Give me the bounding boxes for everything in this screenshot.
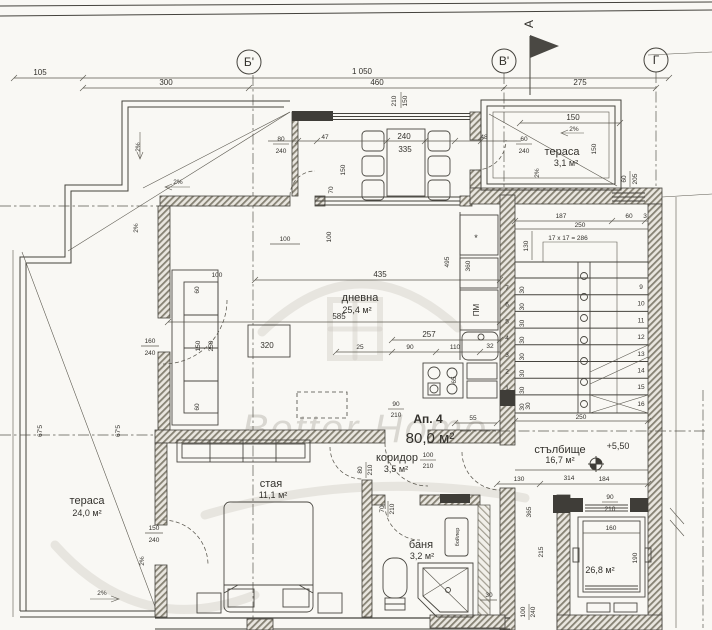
stair-riser-dim: 30: [519, 286, 526, 294]
stair-riser-dim: 30: [519, 336, 526, 344]
dim-label: 80: [357, 466, 364, 474]
stair-riser-dim: 30: [519, 370, 526, 378]
dim-label: 100: [280, 236, 291, 243]
dim-label: 130: [523, 240, 530, 251]
stair-riser-dim: 30: [519, 319, 526, 327]
boiler-label: бойлер: [454, 528, 461, 547]
floor-plan-sheet: Better Home Б' В' Г А 105 1 050 300 460 …: [0, 0, 712, 630]
apartment-area: 80,0 м²: [406, 430, 455, 447]
dim-label: 1 050: [352, 67, 373, 76]
dim-label: 495: [444, 256, 451, 267]
stair-number: 13: [637, 351, 645, 358]
dim-label: 60: [520, 136, 528, 143]
axis-label-v: В': [499, 54, 509, 68]
dim-label: 205: [632, 173, 639, 184]
room-name-bedroom: стая: [260, 478, 283, 490]
dim-label: 100: [520, 606, 527, 617]
room-name-corridor: коридор: [376, 452, 418, 464]
room-area-terrace-large: 24,0 м²: [72, 508, 101, 518]
dim-label: 60: [194, 403, 201, 411]
north-label: А: [522, 20, 536, 28]
stair-number: 2: [505, 369, 509, 376]
dim-label: 100: [326, 231, 333, 242]
dim-label: 130: [514, 476, 525, 483]
dim-label: 210: [423, 463, 434, 470]
dim-label: 240: [530, 606, 537, 617]
dim-label: 48: [480, 134, 488, 141]
dim-label: 150: [402, 95, 409, 106]
stair-riser-dim: 30: [519, 303, 526, 311]
wall-block: [440, 494, 470, 503]
dim-label: 55: [469, 415, 477, 422]
dim-label: 80: [277, 136, 285, 143]
dim-label: 435: [373, 270, 387, 279]
slope-label: 2%: [569, 126, 579, 133]
dim-label: 240: [145, 350, 156, 357]
dim-label: 210: [391, 95, 398, 106]
stair-number: 5: [505, 318, 509, 325]
dim-label: 25: [356, 344, 364, 351]
dim-label: 30: [525, 402, 532, 410]
stair-number: 4: [505, 335, 509, 342]
dim-label: 105: [33, 68, 47, 77]
dim-label: 460: [370, 78, 384, 87]
room-name-bathroom: баня: [409, 539, 433, 551]
dim-label: 67'5: [115, 425, 122, 437]
dim-label: 150: [195, 340, 202, 351]
room-name-terrace-small: тераса: [545, 146, 581, 158]
dim-label: 100: [212, 272, 223, 279]
dim-label: 240: [397, 132, 411, 141]
stair-number: 10: [637, 301, 645, 308]
dim-label: 250: [576, 414, 587, 421]
dim-label: 257: [422, 330, 436, 339]
slope-label: 2%: [534, 168, 541, 178]
dim-label: 90: [392, 401, 400, 408]
room-area-stairwell: 16,7 м²: [545, 455, 574, 465]
slope-label: 2%: [133, 223, 140, 233]
dim-label: 150: [149, 525, 160, 532]
dim-label: 240: [276, 148, 287, 155]
balcony-parapet-block: [292, 111, 333, 121]
axis-label-g: Г: [653, 53, 660, 67]
stair-formula: 17 x 17 = 286: [548, 235, 588, 242]
column: [500, 390, 515, 406]
dim-label: 335: [398, 145, 412, 154]
stair-number: 14: [637, 368, 645, 375]
stair-number: 16: [637, 401, 645, 408]
room-area-bathroom: 3,2 м²: [410, 551, 434, 561]
stair-riser-dim: 30: [519, 386, 526, 394]
stair-number: 6: [505, 302, 509, 309]
shaft-area-label: 26,8 м²: [585, 565, 614, 575]
column: [553, 495, 570, 513]
room-area-terrace-small: 3,1 м²: [554, 158, 578, 168]
stair-number: 11: [638, 317, 645, 324]
dim-label: 150: [566, 113, 580, 122]
dim-label: 210: [367, 464, 374, 475]
dim-label: 90: [406, 344, 414, 351]
dim-label: 210: [389, 503, 396, 514]
dim-label: 240: [149, 537, 160, 544]
dim-label: 150: [591, 143, 598, 154]
stair-number: 15: [637, 384, 645, 391]
apartment-number: Ап. 4: [413, 412, 443, 426]
slope-label: 2%: [135, 142, 142, 152]
dim-label: 360: [465, 260, 472, 271]
stair-number: 3: [505, 352, 509, 359]
dim-label: 300: [159, 78, 173, 87]
stair-riser-dim: 30: [519, 403, 526, 411]
dim-label: 187: [556, 213, 567, 220]
dim-label: 160: [145, 338, 156, 345]
stair-number: 12: [637, 334, 645, 341]
dim-label: 314: [564, 475, 575, 482]
stair-riser-dim: 30: [519, 353, 526, 361]
stair-number: 7: [505, 285, 509, 292]
dim-label: 275: [573, 78, 587, 87]
dim-label: 60: [625, 213, 633, 220]
dim-label: 60: [194, 286, 201, 294]
dim-label: 60: [621, 175, 628, 183]
dim-label: 215: [538, 546, 545, 557]
dim-label: 150: [340, 164, 347, 175]
stair-number: 1: [505, 385, 509, 392]
axis-label-b: Б': [244, 55, 254, 69]
dim-label: 190: [632, 552, 639, 563]
room-area-living: 25,4 м²: [342, 305, 371, 315]
dim-label: 184: [599, 476, 610, 483]
dim-label: 47: [321, 134, 329, 141]
room-name-terrace-large: тераса: [70, 495, 106, 507]
dim-label: 160: [606, 525, 617, 532]
fridge-star: *: [474, 233, 478, 243]
dim-label: 65: [451, 376, 458, 384]
dim-label: 320: [260, 341, 274, 350]
dim-label: 3: [643, 213, 647, 220]
level-label: +5,50: [607, 441, 630, 451]
dim-label: 210: [391, 412, 402, 419]
dim-label: 110: [450, 344, 461, 351]
dim-label: 250: [575, 222, 586, 229]
floor-plan-drawing: Better Home Б' В' Г А 105 1 050 300 460 …: [0, 0, 712, 630]
slope-label: 2%: [97, 590, 107, 597]
room-area-corridor: 3,5 м²: [384, 464, 408, 474]
room-area-bedroom: 11,1 м²: [259, 490, 288, 500]
room-name-living: дневна: [342, 292, 380, 304]
dim-label: 30: [485, 592, 493, 599]
dim-label: 70: [328, 186, 335, 194]
dim-label: 90: [606, 494, 614, 501]
slope-label: 2%: [173, 179, 183, 186]
dim-label: 100: [423, 452, 434, 459]
dim-label: 210: [605, 506, 616, 513]
dim-label: 32: [486, 343, 494, 350]
stair-number: 9: [639, 284, 643, 291]
dim-label: 240: [519, 148, 530, 155]
dim-label: 585: [332, 312, 346, 321]
dim-label: 365: [526, 506, 533, 517]
slope-label: 2%: [139, 556, 146, 566]
dim-label: 67'5: [37, 425, 44, 437]
dishwasher-label: ПМ: [472, 303, 481, 316]
